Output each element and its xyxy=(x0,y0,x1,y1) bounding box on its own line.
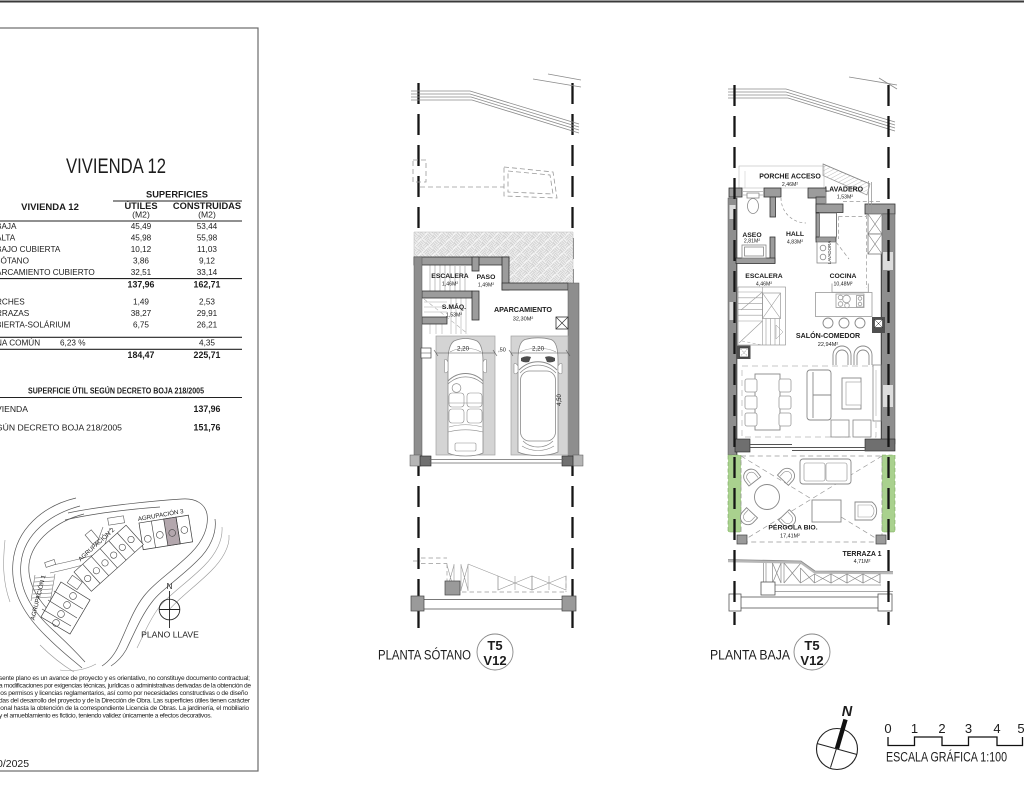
svg-text:3: 3 xyxy=(965,721,972,736)
svg-text:das del desarrollo del proyect: das del desarrollo del proyecto y de la … xyxy=(0,698,251,705)
svg-text:151,76: 151,76 xyxy=(194,423,221,433)
svg-text:4,50: 4,50 xyxy=(557,394,563,406)
svg-text:V12: V12 xyxy=(483,653,506,668)
svg-text:184,47: 184,47 xyxy=(128,350,155,360)
svg-text:1,53M²: 1,53M² xyxy=(837,195,853,201)
svg-text:22,94M²: 22,94M² xyxy=(818,342,839,348)
svg-text:3,86: 3,86 xyxy=(133,257,149,266)
svg-text:45,98: 45,98 xyxy=(131,234,152,243)
svg-text:ALTA: ALTA xyxy=(0,234,16,243)
svg-text:4: 4 xyxy=(993,721,1000,736)
svg-text:2,53: 2,53 xyxy=(199,298,215,307)
svg-text:1,49: 1,49 xyxy=(133,298,149,307)
svg-text:2,20: 2,20 xyxy=(532,346,545,353)
svg-text:PASO: PASO xyxy=(477,274,496,281)
svg-text:4,71M²: 4,71M² xyxy=(854,559,871,565)
svg-text:GÚN DECRETO BOJA 218/2005: GÚN DECRETO BOJA 218/2005 xyxy=(0,423,122,433)
svg-text:VIVIENDA 12: VIVIENDA 12 xyxy=(66,154,166,178)
svg-text:PÉRGOLA BIO.: PÉRGOLA BIO. xyxy=(768,523,817,532)
svg-text:VIVIENDA 12: VIVIENDA 12 xyxy=(21,202,79,213)
svg-text:32,51: 32,51 xyxy=(131,268,152,277)
svg-text:RRAZAS: RRAZAS xyxy=(0,309,30,318)
svg-text:4,83M²: 4,83M² xyxy=(787,240,803,246)
svg-text:2,46M²: 2,46M² xyxy=(782,182,798,188)
svg-text:BIERTA-SOLÁRIUM: BIERTA-SOLÁRIUM xyxy=(0,320,70,330)
svg-text:PLANTA BAJA: PLANTA BAJA xyxy=(710,648,790,663)
svg-text:HALL: HALL xyxy=(786,231,804,238)
svg-text:6,75: 6,75 xyxy=(133,321,149,330)
svg-text:PORCHE ACCESO: PORCHE ACCESO xyxy=(759,174,821,181)
svg-text:0: 0 xyxy=(884,721,891,736)
svg-text:ESCALA GRÁFICA 1:100: ESCALA GRÁFICA 1:100 xyxy=(886,750,1007,765)
svg-text:T5: T5 xyxy=(804,638,819,653)
svg-text:4,35: 4,35 xyxy=(199,339,215,348)
svg-text:y el amueblamiento es ficticio: y el amueblamiento es ficticio, teniendo… xyxy=(0,713,212,720)
svg-text:,50: ,50 xyxy=(498,348,506,354)
svg-text:(M2): (M2) xyxy=(132,210,150,220)
svg-text:V12: V12 xyxy=(800,653,823,668)
svg-text:53,44: 53,44 xyxy=(197,222,218,231)
svg-text:1,49M²: 1,49M² xyxy=(478,283,494,289)
svg-text:4,46M²: 4,46M² xyxy=(756,282,772,288)
svg-text:COCINA: COCINA xyxy=(830,273,857,280)
svg-text:1: 1 xyxy=(911,721,918,736)
svg-text:RCHES: RCHES xyxy=(0,298,25,307)
svg-text:29,91: 29,91 xyxy=(197,309,218,318)
svg-text:SUPERFICIE ÚTIL SEGÚN DECRETO: SUPERFICIE ÚTIL SEGÚN DECRETO BOJA 218/2… xyxy=(28,385,204,396)
svg-text:VIENDA: VIENDA xyxy=(0,404,28,414)
svg-text:225,71: 225,71 xyxy=(194,350,221,360)
svg-text:45,49: 45,49 xyxy=(131,222,152,231)
svg-text:ESCALERA: ESCALERA xyxy=(745,273,782,280)
svg-text:PLANO LLAVE: PLANO LLAVE xyxy=(141,630,199,640)
svg-text:sente plano es un avance de pr: sente plano es un avance de proyecto y e… xyxy=(0,675,250,682)
svg-text:10,12: 10,12 xyxy=(131,245,152,254)
svg-text:1,46M²: 1,46M² xyxy=(442,282,458,288)
svg-text:2,20: 2,20 xyxy=(457,346,470,353)
svg-text:ARCAMIENTO CUBIERTO: ARCAMIENTO CUBIERTO xyxy=(0,268,95,277)
svg-text:162,71: 162,71 xyxy=(194,280,221,290)
svg-text:BAJA: BAJA xyxy=(0,222,17,231)
svg-text:(M2): (M2) xyxy=(198,210,216,220)
svg-text:2,81M²: 2,81M² xyxy=(744,239,760,245)
svg-text:LAVADERO: LAVADERO xyxy=(825,187,864,194)
svg-text:33,14: 33,14 xyxy=(197,268,218,277)
svg-text:6,23 %: 6,23 % xyxy=(60,339,86,348)
svg-text:N: N xyxy=(167,582,173,591)
svg-text:SUPERFICIES: SUPERFICIES xyxy=(146,190,208,200)
svg-text:0/2025: 0/2025 xyxy=(0,758,29,770)
svg-text:BAJO CUBIERTA: BAJO CUBIERTA xyxy=(0,245,61,254)
svg-text:38,27: 38,27 xyxy=(131,309,152,318)
svg-text:1,53M²: 1,53M² xyxy=(446,313,462,319)
svg-text:SALÓN-COMEDOR: SALÓN-COMEDOR xyxy=(796,331,860,340)
svg-text:ional hasta la obtención de la: ional hasta la obtención de la correspon… xyxy=(0,705,249,712)
svg-text:TERRAZA 1: TERRAZA 1 xyxy=(842,551,881,558)
svg-text:PLANTA SÓTANO: PLANTA SÓTANO xyxy=(378,648,471,663)
svg-text:10,48M²: 10,48M² xyxy=(833,282,852,288)
svg-text:137,96: 137,96 xyxy=(128,280,155,290)
svg-text:APARCAMIENTO: APARCAMIENTO xyxy=(494,305,552,314)
svg-text:LAVADORA: LAVADORA xyxy=(827,241,832,264)
svg-text:26,21: 26,21 xyxy=(197,321,218,330)
svg-text:S.MÁQ.: S.MÁQ. xyxy=(442,302,466,311)
svg-text:NA COMÚN: NA COMÚN xyxy=(0,338,40,348)
svg-text:11,03: 11,03 xyxy=(197,245,217,254)
svg-text:los permisos y licencias regla: los permisos y licencias reglamentarios,… xyxy=(0,690,248,697)
svg-text:2: 2 xyxy=(938,721,945,736)
svg-text:5: 5 xyxy=(1017,721,1024,736)
svg-text:N: N xyxy=(842,704,853,720)
svg-text:SÓTANO: SÓTANO xyxy=(0,256,29,266)
svg-text:137,96: 137,96 xyxy=(194,404,221,414)
svg-text:9,12: 9,12 xyxy=(199,257,215,266)
svg-text:T5: T5 xyxy=(487,638,502,653)
svg-text:17,41M²: 17,41M² xyxy=(780,534,800,540)
svg-text:32,30M²: 32,30M² xyxy=(513,317,534,323)
svg-text:ESCALERA: ESCALERA xyxy=(431,273,468,280)
svg-text:55,98: 55,98 xyxy=(197,234,218,243)
svg-text:a modificaciones por exigencia: a modificaciones por exigencias técnicas… xyxy=(0,683,251,690)
